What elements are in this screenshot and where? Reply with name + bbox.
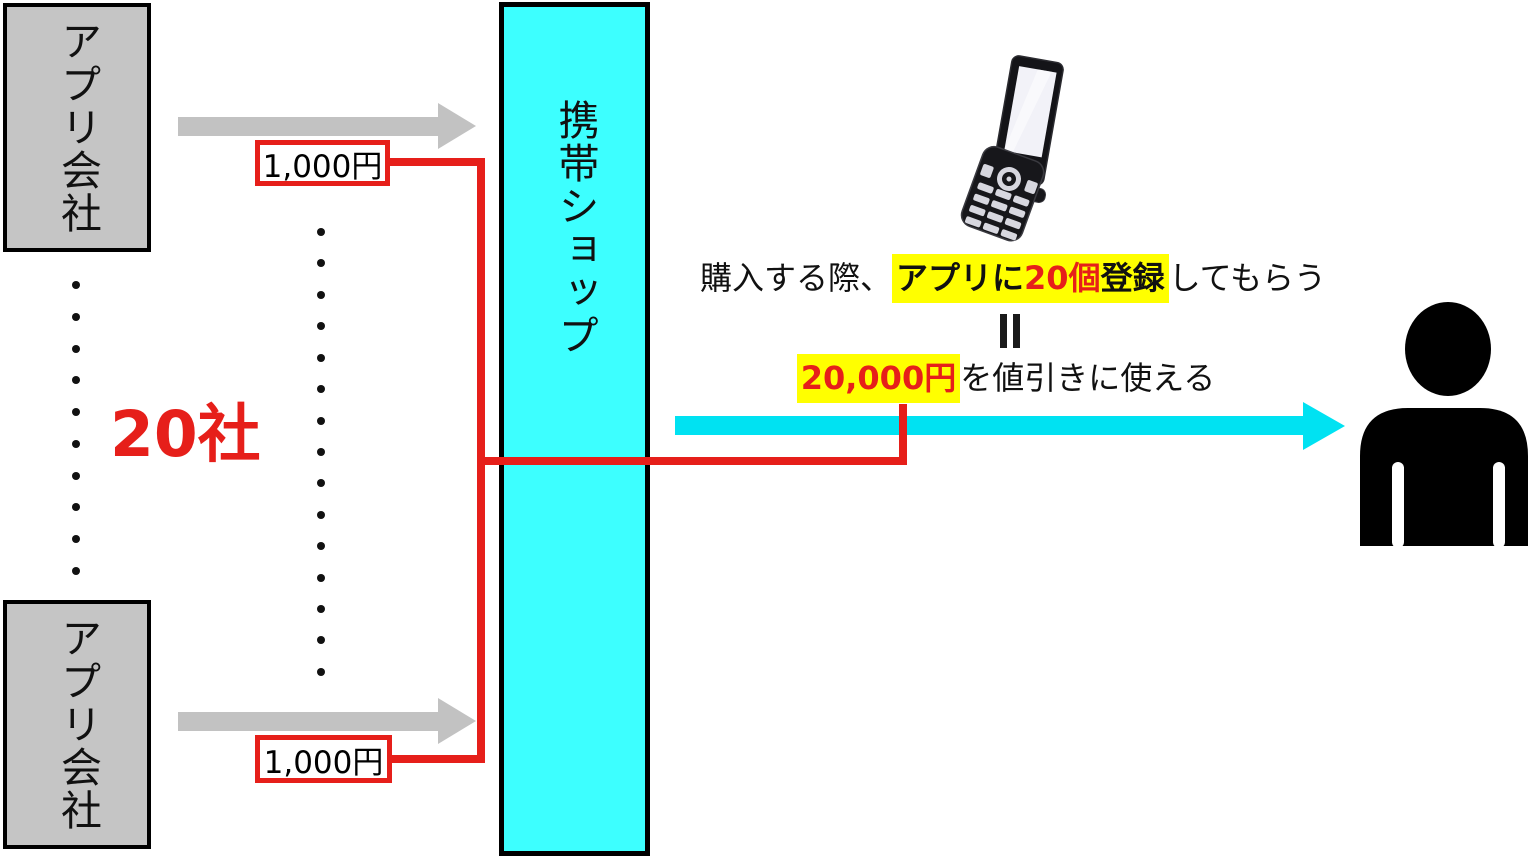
payment-amount-bottom: 1,000円 — [255, 735, 392, 783]
mobile-shop-label: 携帯ショップ — [554, 99, 595, 851]
payment-arrow-top-head-icon — [438, 103, 476, 149]
discount-arrow — [675, 416, 1305, 435]
red-connector-bottom-horizontal — [390, 755, 485, 763]
equals-bar-right — [1013, 314, 1020, 348]
ellipsis-dots-left — [72, 281, 80, 575]
red-connector-price-drop — [899, 404, 907, 465]
equals-sign — [1000, 314, 1020, 348]
payment-arrow-top — [178, 117, 439, 136]
offer-line1-register: 登録 — [1101, 259, 1165, 297]
app-company-bottom-label: アプリ会社 — [57, 617, 98, 832]
offer-line1-highlight: アプリに20個登録 — [892, 254, 1169, 303]
app-company-top-label: アプリ会社 — [57, 20, 98, 235]
app-company-box-top: アプリ会社 — [3, 3, 151, 252]
person-icon — [1352, 300, 1536, 548]
payment-amount-top: 1,000円 — [255, 140, 390, 186]
offer-line1-prefix: 購入する際、 — [700, 259, 892, 297]
flip-phone-icon — [942, 45, 1082, 255]
offer-line1-suffix: してもらう — [1169, 259, 1326, 297]
offer-line2-highlight: 20,000円 — [797, 354, 961, 403]
discount-arrow-head-icon — [1303, 402, 1345, 450]
mobile-shop-box: 携帯ショップ — [499, 2, 650, 856]
payment-amount-bottom-value: 1,000円 — [264, 737, 384, 782]
payment-arrow-bottom-head-icon — [438, 698, 476, 744]
red-connector-top-horizontal — [388, 158, 485, 166]
company-count-label: 20社 — [110, 384, 261, 475]
red-connector-middle-horizontal — [477, 457, 907, 465]
app-company-box-bottom: アプリ会社 — [3, 600, 151, 849]
ellipsis-dots-middle — [317, 228, 325, 676]
diagram-canvas: アプリ会社 アプリ会社 20社 携帯ショップ 1,000円 1,000円 — [0, 0, 1536, 858]
offer-line1-count: 20個 — [1024, 259, 1101, 297]
equals-bar-left — [1000, 314, 1007, 348]
payment-amount-top-value: 1,000円 — [263, 141, 383, 186]
offer-line2: 20,000円を値引きに使える — [700, 353, 1312, 399]
offer-line1: 購入する際、アプリに20個登録してもらう — [700, 253, 1312, 299]
offer-line1-apps: アプリに — [896, 259, 1024, 297]
offer-line2-amount: 20,000円 — [801, 359, 957, 397]
payment-arrow-bottom — [178, 712, 439, 731]
offer-line2-suffix: を値引きに使える — [960, 359, 1215, 397]
